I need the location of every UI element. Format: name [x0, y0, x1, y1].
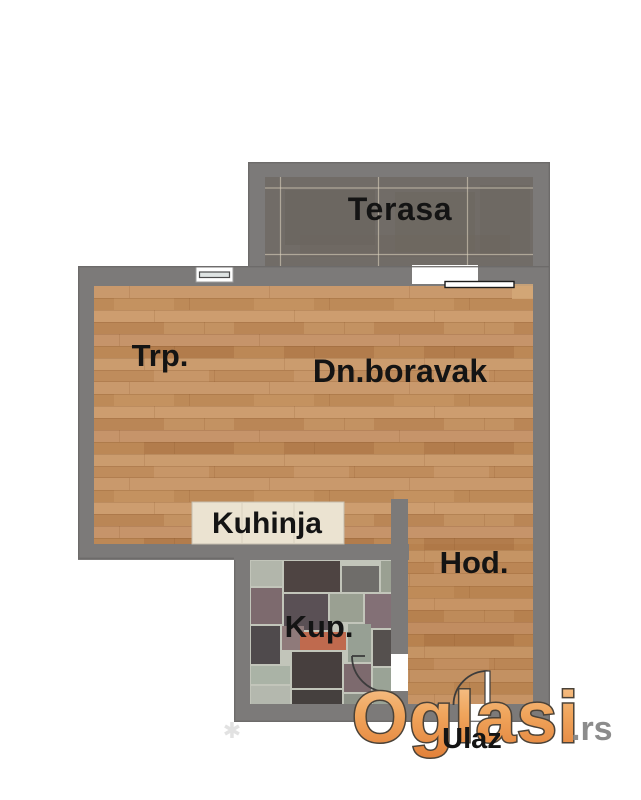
svg-text:✱: ✱ — [223, 718, 241, 743]
svg-text:Terasa: Terasa — [348, 191, 452, 227]
svg-text:Trp.: Trp. — [132, 338, 189, 373]
svg-text:Kup.: Kup. — [285, 609, 354, 644]
svg-text:Kuhinja: Kuhinja — [212, 507, 322, 540]
svg-text:Hod.: Hod. — [440, 545, 509, 580]
svg-text:Dn.boravak: Dn.boravak — [313, 353, 487, 389]
svg-text:Ulaz: Ulaz — [442, 723, 502, 755]
svg-text:.rs: .rs — [571, 710, 613, 748]
